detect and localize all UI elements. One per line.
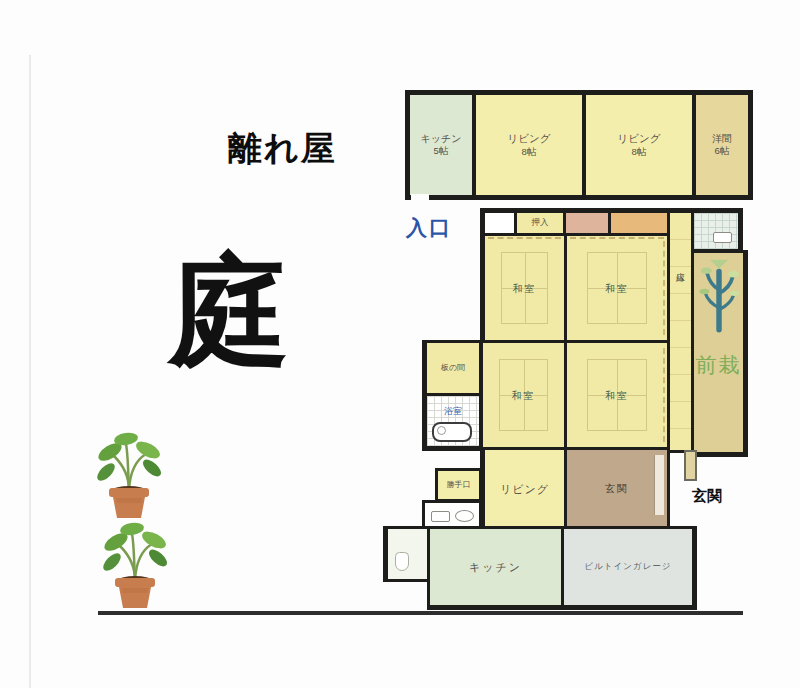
room-katteguchi: 勝手口 <box>435 468 482 502</box>
sink-icon <box>455 510 474 522</box>
tree-icon <box>698 257 740 337</box>
toilet-fixture-icon <box>713 232 732 243</box>
room-label: 浴室 <box>444 405 462 418</box>
room-size: 5帖 <box>434 145 449 157</box>
room-label: リビング <box>508 132 551 146</box>
sliding-door-line <box>570 237 664 239</box>
detached-door-gap <box>411 194 429 202</box>
area-sensai: 前栽 <box>691 250 748 457</box>
room-oshiire-closet <box>480 208 517 236</box>
room-size: 6帖 <box>715 145 730 157</box>
sensai-label: 前栽 <box>696 351 742 379</box>
washbasin-icon <box>431 511 450 522</box>
room-label: キッチン <box>421 132 462 145</box>
room-label: リビング <box>618 132 661 146</box>
toilet-icon <box>395 552 409 571</box>
room-size: 8帖 <box>522 146 537 158</box>
bathtub-icon <box>432 422 472 442</box>
room-detached-living1: リビング 8帖 <box>476 95 586 195</box>
room-label: 広縁 <box>675 265 686 269</box>
room-label: ビルトインガレージ <box>584 561 671 573</box>
room-label: 板の間 <box>441 363 465 373</box>
genkan-door-strip <box>654 455 664 515</box>
garden-label: 庭 <box>168 232 290 396</box>
room-oshiire: 押入 <box>514 208 566 236</box>
room-hiroen: 広縁 <box>667 208 694 453</box>
potted-plant-icon <box>102 520 168 612</box>
sliding-door-line <box>663 348 665 442</box>
room-label: 和室 <box>512 389 536 402</box>
room-label: キッチン <box>469 560 522 574</box>
room-label: リビング <box>500 482 549 496</box>
scan-edge-line <box>29 55 31 688</box>
genkan-outside-label: 玄関 <box>692 487 722 506</box>
sliding-door-line <box>488 237 561 239</box>
room-bathroom: 浴室 <box>422 393 482 451</box>
room-itanoma: 板の間 <box>422 340 482 396</box>
room-living-main: リビング <box>480 447 567 532</box>
sliding-door-line <box>663 241 665 335</box>
potted-plant-icon <box>96 430 162 522</box>
room-label: 和室 <box>605 282 629 295</box>
closet-orange <box>608 208 670 236</box>
room-kitchen-main: キッチン <box>427 526 564 610</box>
room-label: 玄関 <box>605 482 629 496</box>
room-size: 8帖 <box>632 146 647 158</box>
room-label: 洋間 <box>712 132 732 145</box>
room-detached-kitchen: キッチン 5帖 <box>410 95 476 195</box>
room-label: 和室 <box>605 389 629 402</box>
detached-house-title: 離れ屋 <box>228 126 337 172</box>
room-detached-yoma: 洋間 6帖 <box>696 95 748 195</box>
entrance-label: 入口 <box>406 214 452 242</box>
floor-plan-canvas: 庭 離れ屋 入口 玄関 キッチン 5帖 リビング 8帖 リビング 8帖 洋間 6… <box>0 0 800 688</box>
room-washitsu-sw: 和室 <box>480 340 567 450</box>
ground-line <box>98 611 743 615</box>
detached-house: キッチン 5帖 リビング 8帖 リビング 8帖 洋間 6帖 <box>405 90 753 200</box>
room-genkan: 玄関 <box>564 447 670 530</box>
genkan-step <box>684 450 697 481</box>
room-washitsu-ne: 和室 <box>564 233 670 343</box>
room-label: 和室 <box>513 282 537 295</box>
room-label: 押入 <box>532 217 549 228</box>
room-washitsu-se: 和室 <box>564 340 670 450</box>
room-washitsu-nw: 和室 <box>480 233 567 343</box>
closet-pink <box>563 208 611 236</box>
room-label: 勝手口 <box>447 480 471 490</box>
room-garage: ビルトインガレージ <box>561 526 697 610</box>
room-toilet-top <box>691 208 743 252</box>
room-toilet-bottom <box>383 526 430 582</box>
room-detached-living2: リビング 8帖 <box>586 95 696 195</box>
